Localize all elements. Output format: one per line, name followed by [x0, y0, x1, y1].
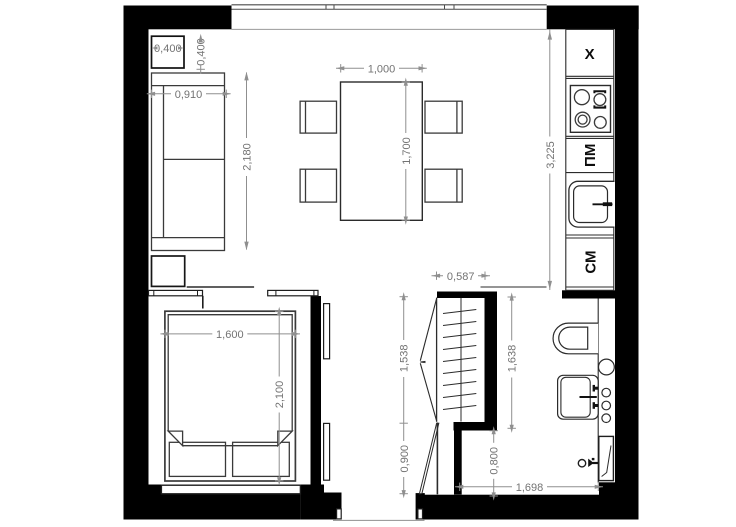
svg-text:1,000: 1,000	[368, 63, 396, 75]
svg-text:1,600: 1,600	[216, 329, 244, 341]
svg-text:0,910: 0,910	[175, 89, 203, 101]
svg-text:ПМ: ПМ	[582, 144, 599, 167]
svg-text:1,638: 1,638	[507, 345, 519, 373]
svg-text:3,225: 3,225	[545, 141, 557, 169]
svg-text:1,698: 1,698	[516, 482, 544, 494]
svg-text:1,538: 1,538	[399, 345, 411, 373]
svg-text:0,800: 0,800	[489, 447, 501, 475]
svg-text:0,400: 0,400	[154, 43, 182, 55]
svg-text:Х: Х	[585, 46, 595, 63]
svg-text:1,700: 1,700	[401, 137, 413, 165]
svg-text:0,900: 0,900	[399, 445, 411, 473]
svg-text:СМ: СМ	[582, 250, 599, 273]
svg-text:0,587: 0,587	[447, 271, 475, 283]
svg-text:2,180: 2,180	[241, 143, 253, 171]
svg-text:2,100: 2,100	[274, 381, 286, 409]
